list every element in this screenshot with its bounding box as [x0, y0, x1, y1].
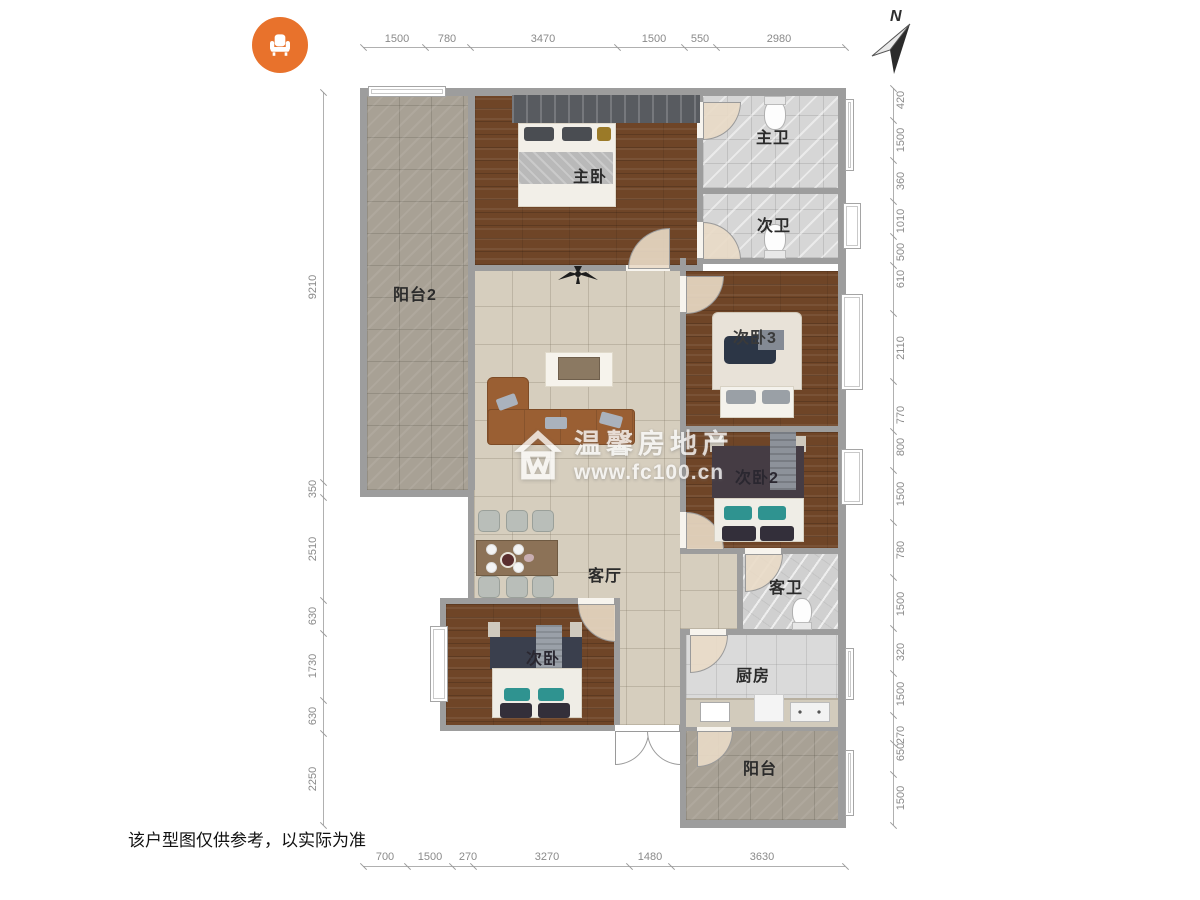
dim-label: 700	[376, 851, 394, 863]
dim-label: 1500	[385, 33, 409, 45]
dim-label: 1010	[895, 209, 907, 233]
wall	[680, 820, 846, 828]
label-bedroom2: 次卧2	[735, 464, 779, 488]
toilet-tank	[792, 622, 812, 630]
disclaimer-text: 该户型图仅供参考，以实际为准	[128, 826, 366, 851]
bed-pillow	[762, 390, 790, 404]
window	[368, 86, 446, 97]
dining-chair	[532, 510, 554, 532]
wall	[360, 88, 367, 497]
dim-label: 1500	[642, 33, 666, 45]
bed-pillow	[562, 127, 592, 141]
dim-label: 500	[895, 243, 907, 261]
entry-door-arc-right	[647, 731, 681, 765]
dim-label: 2110	[895, 336, 907, 360]
bed-pillow-teal	[758, 506, 786, 520]
kitchen-stove	[790, 702, 830, 722]
dim-label: 2250	[307, 767, 319, 791]
bed-pillow	[500, 703, 532, 718]
dim-label: 610	[895, 270, 907, 288]
dim-label: 1500	[418, 851, 442, 863]
kitchen-sink	[700, 702, 730, 722]
label-master-bath: 主卫	[756, 124, 790, 148]
wall	[737, 554, 743, 635]
compass-needle-icon	[866, 6, 920, 80]
bed-pillow-teal	[724, 506, 752, 520]
dim-label: 2980	[767, 33, 791, 45]
window	[845, 99, 854, 171]
label-balcony2: 阳台2	[393, 281, 437, 305]
window	[843, 203, 861, 249]
dim-label: 1730	[307, 654, 319, 678]
bed-pillow	[722, 526, 756, 541]
window	[845, 648, 854, 700]
dim-label: 780	[895, 541, 907, 559]
dim-label: 1500	[895, 482, 907, 506]
dim-label: 630	[307, 607, 319, 625]
dim-label: 360	[895, 172, 907, 190]
bed-pillow	[538, 703, 570, 718]
dim-label: 270	[459, 851, 477, 863]
wardrobe	[512, 95, 700, 123]
room-corridor	[680, 554, 737, 629]
entry-door-arc-left	[615, 731, 649, 765]
dim-label: 1500	[895, 682, 907, 706]
bed-pillow	[760, 526, 794, 541]
bed-pillow	[726, 390, 756, 404]
dim-line-left	[323, 92, 324, 825]
wall	[468, 490, 474, 604]
label-balcony1: 阳台	[743, 755, 777, 779]
watermark: 温馨房地产 www.fc100.cn	[512, 422, 734, 485]
wall	[468, 88, 475, 490]
dim-label: 270	[895, 726, 907, 744]
dish	[500, 552, 516, 568]
dining-chair	[506, 576, 528, 598]
dining-chair	[506, 510, 528, 532]
house-logo-icon	[512, 427, 564, 481]
kitchen-island	[754, 694, 784, 722]
toilet-tank	[764, 96, 786, 105]
dim-label: 550	[691, 33, 709, 45]
dim-label: 1480	[638, 851, 662, 863]
dining-chair	[478, 576, 500, 598]
window	[841, 449, 863, 505]
watermark-url: www.fc100.cn	[574, 461, 734, 485]
watermark-brand: 温馨房地产	[574, 422, 734, 461]
label-bedroom3: 次卧3	[733, 324, 777, 348]
dim-label: 1500	[895, 128, 907, 152]
dim-label: 9210	[307, 275, 319, 299]
dim-label: 3270	[535, 851, 559, 863]
plate	[486, 544, 497, 555]
dim-label: 770	[895, 406, 907, 424]
dim-label: 1500	[895, 592, 907, 616]
dim-label: 3470	[531, 33, 555, 45]
dim-label: 800	[895, 438, 907, 456]
label-second-bath: 次卫	[757, 212, 791, 236]
plate	[486, 562, 497, 573]
bed-post	[488, 622, 500, 637]
plate	[513, 544, 524, 555]
bed-pillow	[597, 127, 611, 141]
dim-label: 420	[895, 91, 907, 109]
dining-chair	[478, 510, 500, 532]
dim-label: 630	[307, 707, 319, 725]
wall	[700, 188, 843, 194]
bed-pillow	[524, 127, 554, 141]
bed-pillow-teal	[504, 688, 530, 701]
dim-label: 320	[895, 643, 907, 661]
bed-pillow-teal	[538, 688, 564, 701]
dim-label: 1500	[895, 786, 907, 810]
dim-label: 3630	[750, 851, 774, 863]
dim-label: 2510	[307, 537, 319, 561]
app-logo-badge	[252, 17, 308, 73]
coffee-table	[558, 357, 600, 380]
label-master-bedroom: 主卧	[573, 163, 607, 187]
wall	[360, 490, 474, 497]
window	[845, 750, 854, 816]
toilet-tank	[764, 250, 786, 259]
dining-chair	[532, 576, 554, 598]
armchair-icon	[264, 29, 296, 61]
label-guest-bath: 客卫	[769, 574, 803, 598]
window	[841, 294, 863, 390]
bed-post	[570, 622, 582, 637]
label-bedroom-small: 次卧	[526, 645, 560, 669]
dim-line-top	[363, 47, 845, 48]
label-living: 客厅	[588, 562, 622, 586]
window	[430, 626, 448, 702]
compass: N	[866, 6, 920, 80]
dim-label: 350	[307, 480, 319, 498]
dim-line-bottom	[363, 866, 845, 867]
dim-label: 780	[438, 33, 456, 45]
ceiling-fan-icon	[556, 264, 600, 288]
label-kitchen: 厨房	[736, 662, 770, 686]
